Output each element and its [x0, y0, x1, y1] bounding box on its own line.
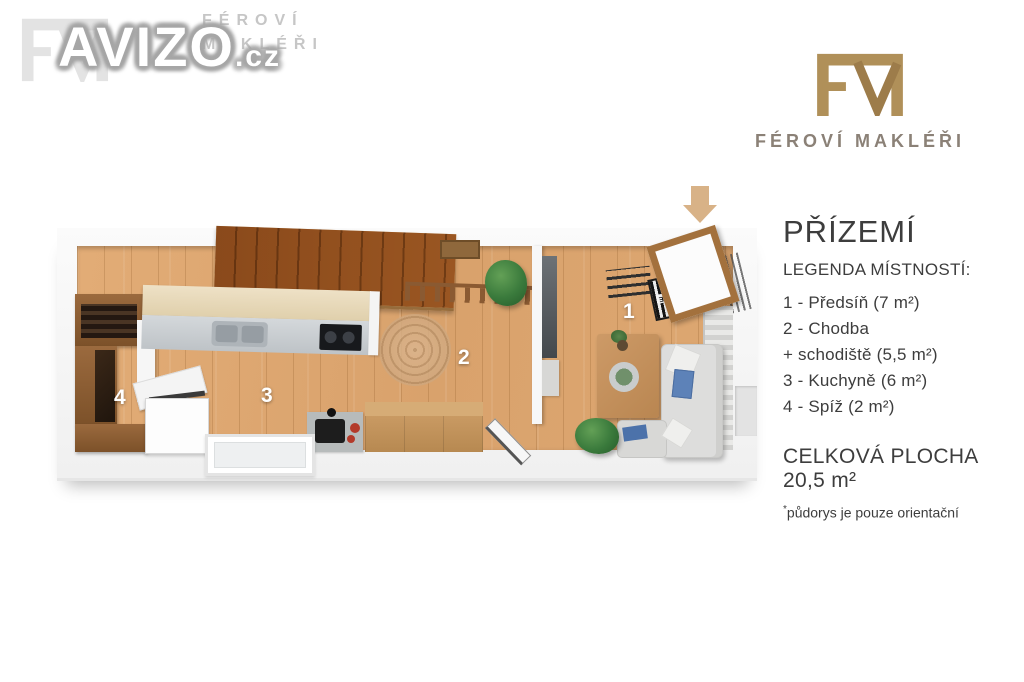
brand-logo: FÉROVÍ MAKLÉŘI [742, 52, 978, 152]
watermark-text: AVIZO.cz [58, 14, 281, 79]
total-area-label: CELKOVÁ PLOCHA 20,5 m² [783, 445, 1017, 493]
disclaimer-note: *půdorys je pouze orientační [783, 502, 1017, 521]
room-number-3: 3 [261, 384, 273, 408]
legend-item-2: 2 - Chodba [783, 316, 1017, 342]
entry-table [597, 334, 659, 418]
brand-name: FÉROVÍ MAKLÉŘI [742, 131, 978, 152]
chest-freezer [145, 398, 209, 454]
red-accessory [350, 423, 360, 433]
note-text: půdorys je pouze orientační [787, 505, 959, 521]
window [205, 434, 315, 476]
burner [324, 331, 336, 343]
exterior-landing [735, 386, 757, 436]
pantry-shelf-top [75, 294, 143, 346]
avizo-watermark: FÉROVÍ MAKLÉŘI AVIZO.cz [6, 6, 366, 96]
pantry-shelf-bottom [75, 424, 147, 452]
floorplan-render: WELCOME 1 2 3 4 [57, 228, 757, 478]
legend-item-3: + schodiště (5,5 m²) [783, 342, 1017, 368]
wall-picture [440, 240, 480, 259]
plant-entry [575, 418, 619, 454]
arrow-head [683, 205, 717, 223]
coffee-machine-knob [327, 408, 336, 417]
pantry-shelf-left [75, 346, 117, 426]
legend-list: 1 - Předsíň (7 m²) 2 - Chodba + schodišt… [783, 290, 1017, 420]
shoe-cabinet [542, 360, 559, 396]
legend-heading: LEGENDA MÍSTNOSTÍ: [783, 260, 1017, 280]
room-number-1: 1 [623, 300, 635, 324]
pantry-shelf-front [95, 350, 115, 422]
listing-floorplan-image: FÉROVÍ MAKLÉŘI AVIZO.cz FÉROVÍ MAKLÉŘI [0, 0, 1024, 682]
entrance-arrow-icon [683, 186, 717, 224]
sink-basin [241, 326, 263, 344]
watermark-brand: AVIZO [58, 15, 235, 78]
sideboard [365, 402, 483, 452]
sink-basin [215, 325, 237, 343]
round-rug [379, 314, 451, 386]
kitchen-sink [211, 321, 268, 348]
sideboard-top [365, 402, 483, 416]
cooktop [319, 324, 362, 351]
legend-item-1: 1 - Předsíň (7 m²) [783, 290, 1017, 316]
arrow-shaft [691, 186, 709, 205]
counter-end-panel [368, 291, 380, 355]
sofa-pillow-blue [672, 369, 695, 399]
plant-hallway [485, 260, 527, 306]
watermark-tld: .cz [235, 40, 281, 73]
window-pane [214, 442, 306, 468]
burner [342, 331, 354, 343]
red-accessory [347, 435, 355, 443]
vase [617, 340, 628, 351]
pantry-shelf-slots [81, 304, 137, 338]
kitchen-counter [141, 285, 371, 359]
sideboard-front [365, 416, 483, 452]
legend-item-5: 4 - Spíž (2 m²) [783, 394, 1017, 420]
partition-wall [532, 246, 542, 424]
counter-front [141, 315, 370, 355]
room-number-4: 4 [114, 386, 126, 410]
decor-tray [609, 362, 639, 392]
coffee-machine [315, 419, 345, 443]
fm-monogram-icon [810, 52, 910, 116]
legend-item-4: 3 - Kuchyně (6 m²) [783, 368, 1017, 394]
floor-title: PŘÍZEMÍ [783, 214, 1017, 250]
tall-mirror-cabinet [542, 256, 557, 358]
appliance-mat [307, 412, 363, 452]
legend-panel: PŘÍZEMÍ LEGENDA MÍSTNOSTÍ: 1 - Předsíň (… [783, 214, 1017, 521]
room-number-2: 2 [458, 346, 470, 370]
shoe-rack [606, 266, 653, 298]
